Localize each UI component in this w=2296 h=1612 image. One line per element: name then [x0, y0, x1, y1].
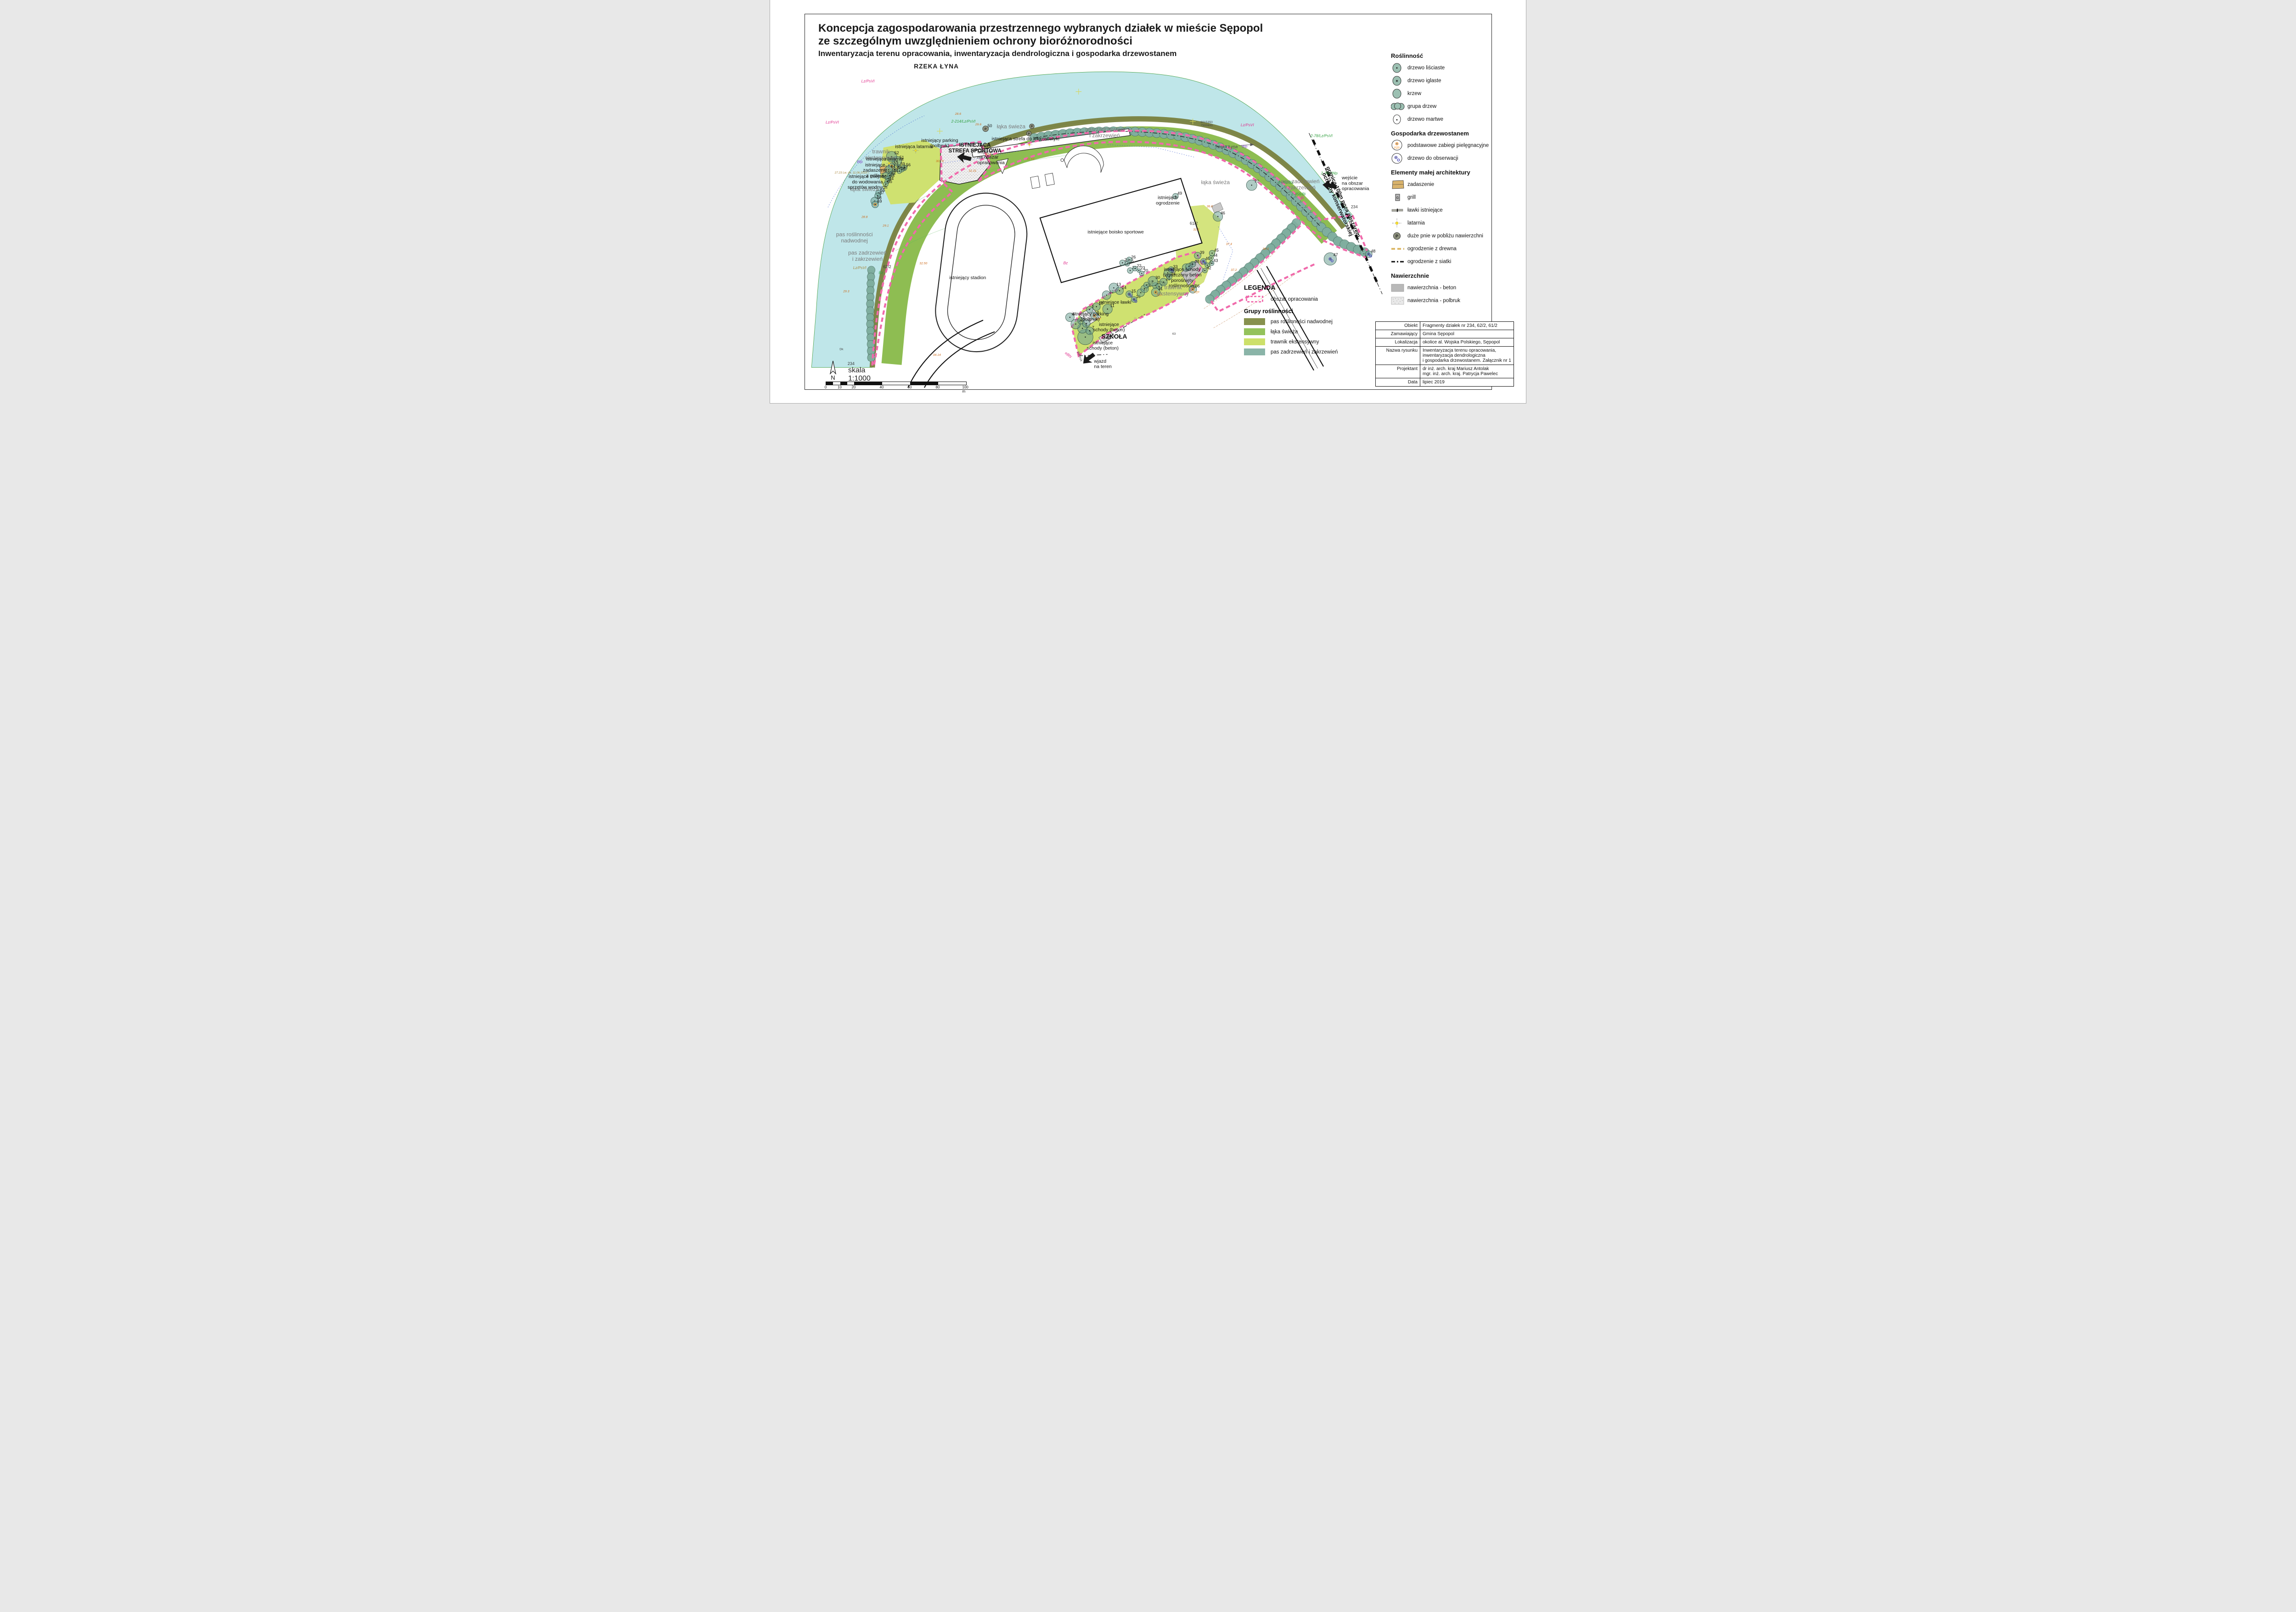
legenda-group-item: trawnik ekstensywny	[1244, 338, 1359, 345]
group-label: trawnik ekstensywny	[1271, 339, 1319, 345]
scale-bar	[826, 382, 967, 385]
bench-icon	[1391, 204, 1407, 216]
info-table-row: Projektantdr inż. arch. kraj Mariusz Ant…	[1376, 365, 1514, 378]
tree-conifer-icon: ✶	[1391, 75, 1407, 87]
scale-bar-segment	[847, 382, 854, 385]
legenda-groups: pas roślinności nadwodnejłąka świeżatraw…	[1244, 318, 1359, 355]
legend-item-stump: Pduże pnie w pobliżu nawierzchni	[1391, 230, 1514, 242]
legend-item-bench: ławki istniejące	[1391, 204, 1514, 216]
info-row-value: lipiec 2019	[1420, 378, 1514, 387]
legend-item-shrub: krzew	[1391, 88, 1514, 100]
stump-icon: P	[1391, 230, 1407, 242]
legend-item-grill: Ggrill	[1391, 191, 1514, 203]
shelter-icon	[1391, 179, 1407, 191]
title-line3: Inwentaryzacja terenu opracowania, inwen…	[818, 49, 1287, 58]
legend-item-label: grill	[1407, 195, 1416, 200]
scale-bar-segment	[910, 382, 938, 385]
lamp-icon	[1391, 217, 1407, 229]
svg-text:✶: ✶	[1395, 79, 1399, 84]
scale-bar-segment	[938, 382, 966, 385]
group-color-swatch	[1244, 338, 1265, 345]
group-color-swatch	[1244, 318, 1265, 325]
legend-item-wood-fence: ogrodzenie z drewna	[1391, 243, 1514, 255]
scale-bar-segment	[833, 382, 840, 385]
legend-item-pavers: nawierzchnia - polbruk	[1391, 295, 1514, 307]
info-row-label: Lokalizacja	[1376, 338, 1420, 347]
legenda-group-item: pas zadrzewień i zakrzewień	[1244, 348, 1359, 355]
scale-tick: 0	[825, 385, 827, 389]
grill-icon: G	[1391, 191, 1407, 203]
info-table-row: ZamawiającyGmina Sępopol	[1376, 330, 1514, 338]
legend-section-heading: Gospodarka drzewostanem	[1391, 130, 1514, 137]
info-row-value: dr inż. arch. kraj Mariusz Antolak mgr. …	[1420, 365, 1514, 378]
info-row-value: Fragmenty działek nr 234, 62/2, 61/2	[1420, 322, 1514, 330]
info-row-label: Data	[1376, 378, 1420, 387]
group-label: pas zadrzewień i zakrzewień	[1271, 349, 1338, 355]
drawing-sheet: ☆ ☆ ☆ ☆ ☆ 1234567PZP89101112131415161718…	[770, 0, 1526, 403]
info-row-label: Projektant	[1376, 365, 1420, 378]
north-arrow-icon: N	[828, 360, 838, 381]
info-table-row: ObiektFragmenty działek nr 234, 62/2, 61…	[1376, 322, 1514, 330]
legenda-groups-heading: Grupy roślinności	[1244, 308, 1359, 315]
legend-item-label: grupa drzew	[1407, 104, 1436, 109]
group-color-swatch	[1244, 328, 1265, 335]
info-table: ObiektFragmenty działek nr 234, 62/2, 61…	[1375, 321, 1514, 387]
legenda-group-item: pas roślinności nadwodnej	[1244, 318, 1359, 325]
legend-item-label: ogrodzenie z siatki	[1407, 259, 1451, 264]
legend-item-label: podstawowe zabiegi pielęgnacyjne	[1407, 143, 1489, 148]
legend-item-observe: drzewo do obserwacji	[1391, 152, 1514, 164]
legend-item-tree-group: grupa drzew	[1391, 101, 1514, 112]
title-line1: Koncepcja zagospodarowania przestrzenneg…	[818, 22, 1287, 35]
legend-item-tree-conifer: ✶drzewo iglaste	[1391, 75, 1514, 87]
scale-tick: 20	[852, 385, 856, 389]
svg-text:P: P	[1396, 234, 1398, 239]
tree-dead-icon	[1391, 113, 1407, 125]
info-row-value: Inwentaryzacja terenu opracowania, inwen…	[1420, 347, 1514, 365]
legend-item-label: ogrodzenie z drewna	[1407, 246, 1457, 252]
legend-item-concrete: nawierzchnia - beton	[1391, 282, 1514, 294]
info-row-label: Obiekt	[1376, 322, 1420, 330]
scale-bar-segment	[826, 382, 833, 385]
scale-bar-segment	[882, 382, 910, 385]
area-dashed-icon	[1244, 296, 1265, 303]
shrub-icon	[1391, 88, 1407, 100]
legend-item-label: krzew	[1407, 91, 1421, 96]
legend-item-label: ławki istniejące	[1407, 208, 1443, 213]
scale-tick: 80	[936, 385, 940, 389]
info-row-label: Zamawiający	[1376, 330, 1420, 338]
legend-right: Roślinnośćdrzewo liściaste✶drzewo iglast…	[1391, 48, 1514, 308]
north-label: N	[831, 374, 835, 381]
group-color-swatch	[1244, 348, 1265, 355]
info-row-value: Gmina Sępopol	[1420, 330, 1514, 338]
legend-item-label: nawierzchnia - polbruk	[1407, 298, 1460, 303]
title-block: Koncepcja zagospodarowania przestrzenneg…	[818, 22, 1287, 58]
scale-tick-labels: 01020406080100 m	[826, 385, 973, 390]
legend-section-heading: Elementy małej architektury	[1391, 169, 1514, 176]
scale-bar-segment	[854, 382, 882, 385]
legend-item-label: drzewo iglaste	[1407, 78, 1441, 84]
legend-item-label: nawierzchnia - beton	[1407, 285, 1456, 291]
info-row-value: okolice al. Wojska Polskiego, Sępopol	[1420, 338, 1514, 347]
scale-bar-segment	[840, 382, 847, 385]
info-table-row: Datalipiec 2019	[1376, 378, 1514, 387]
legend-item-tree-deciduous: drzewo liściaste	[1391, 62, 1514, 74]
legend-item-shelter: zadaszenie	[1391, 179, 1514, 191]
tree-group-icon	[1391, 101, 1407, 112]
info-table-row: Lokalizacjaokolice al. Wojska Polskiego,…	[1376, 338, 1514, 347]
legend-item-pzp: PZPpodstawowe zabiegi pielęgnacyjne	[1391, 140, 1514, 152]
pzp-icon: PZP	[1391, 140, 1407, 152]
legend-item-tree-dead: drzewo martwe	[1391, 113, 1514, 125]
group-label: pas roślinności nadwodnej	[1271, 319, 1333, 325]
info-table-row: Nazwa rysunkuInwentaryzacja terenu oprac…	[1376, 347, 1514, 365]
wood-fence-icon	[1391, 243, 1407, 255]
legenda-area-label: obszar opracowania	[1271, 297, 1318, 302]
svg-text:PZP: PZP	[1394, 147, 1400, 150]
scale-text: skala 1:1000	[848, 366, 871, 383]
info-row-label: Nazwa rysunku	[1376, 347, 1420, 365]
group-label: łąka świeża	[1271, 329, 1298, 335]
scale-tick: 10	[838, 385, 842, 389]
legenda-area-item: obszar opracowania	[1244, 296, 1359, 303]
mesh-fence-icon	[1391, 256, 1407, 268]
svg-text:G: G	[1396, 197, 1399, 200]
legend-item-mesh-fence: ogrodzenie z siatki	[1391, 256, 1514, 268]
legend-item-label: drzewo martwe	[1407, 117, 1443, 122]
legend-item-label: zadaszenie	[1407, 182, 1434, 187]
legend-item-label: latarnia	[1407, 220, 1425, 226]
legenda-group-item: łąka świeża	[1244, 328, 1359, 335]
tree-deciduous-icon	[1391, 62, 1407, 74]
scale-tick: 60	[908, 385, 912, 389]
legend-section-heading: Nawierzchnie	[1391, 272, 1514, 279]
legend-item-label: drzewo do obserwacji	[1407, 156, 1458, 161]
observe-icon	[1391, 152, 1407, 164]
concrete-icon	[1391, 282, 1407, 294]
scale-tick: 100 m	[962, 385, 969, 393]
legenda-block: LEGENDA obszar opracowania Grupy roślinn…	[1244, 284, 1359, 359]
legenda-heading: LEGENDA	[1244, 284, 1359, 291]
title-line2: ze szczególnym uwzględnieniem ochrony bi…	[818, 35, 1287, 48]
scale-tick: 40	[880, 385, 884, 389]
legend-item-label: drzewo liściaste	[1407, 65, 1445, 71]
legend-item-lamp: latarnia	[1391, 217, 1514, 229]
legend-section-heading: Roślinność	[1391, 52, 1514, 59]
pavers-icon	[1391, 295, 1407, 307]
legend-item-label: duże pnie w pobliżu nawierzchni	[1407, 233, 1483, 239]
